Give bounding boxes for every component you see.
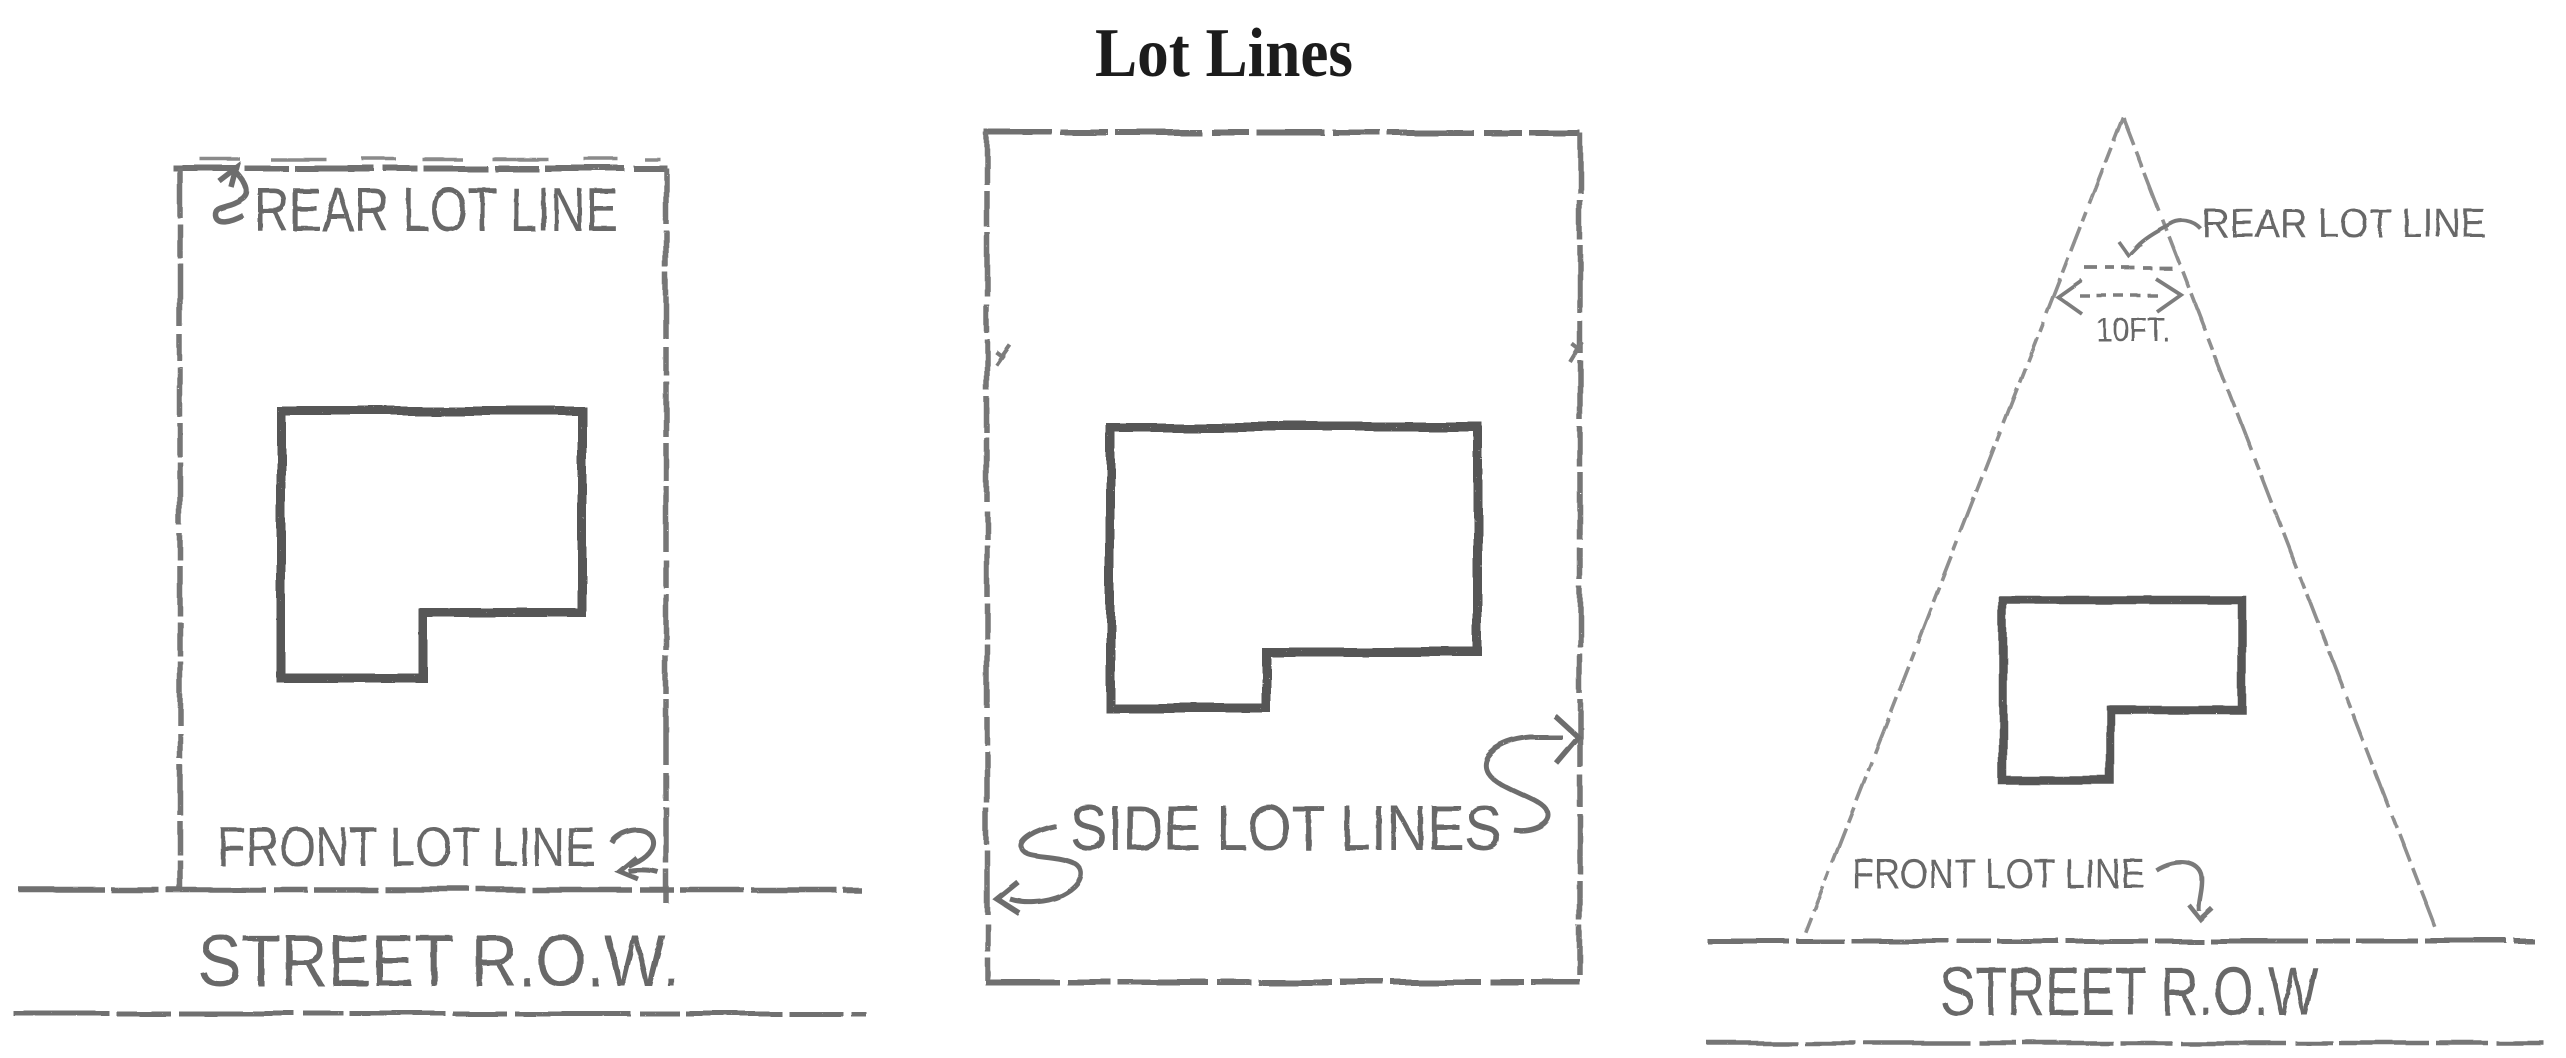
svg-text:REAR LOT LINE: REAR LOT LINE [254,176,618,245]
svg-text:FRONT LOT LINE: FRONT LOT LINE [217,815,596,878]
svg-text:REAR LOT LINE: REAR LOT LINE [2202,200,2486,246]
svg-text:Lot Lines: Lot Lines [1095,15,1353,92]
svg-text:STREET R.O.W: STREET R.O.W [1940,953,2318,1030]
svg-text:STREET R.O.W.: STREET R.O.W. [198,921,680,1002]
svg-text:FRONT LOT LINE: FRONT LOT LINE [1852,850,2145,897]
svg-text:10FT.: 10FT. [2096,311,2170,348]
svg-text:SIDE LOT LINES: SIDE LOT LINES [1070,792,1502,864]
